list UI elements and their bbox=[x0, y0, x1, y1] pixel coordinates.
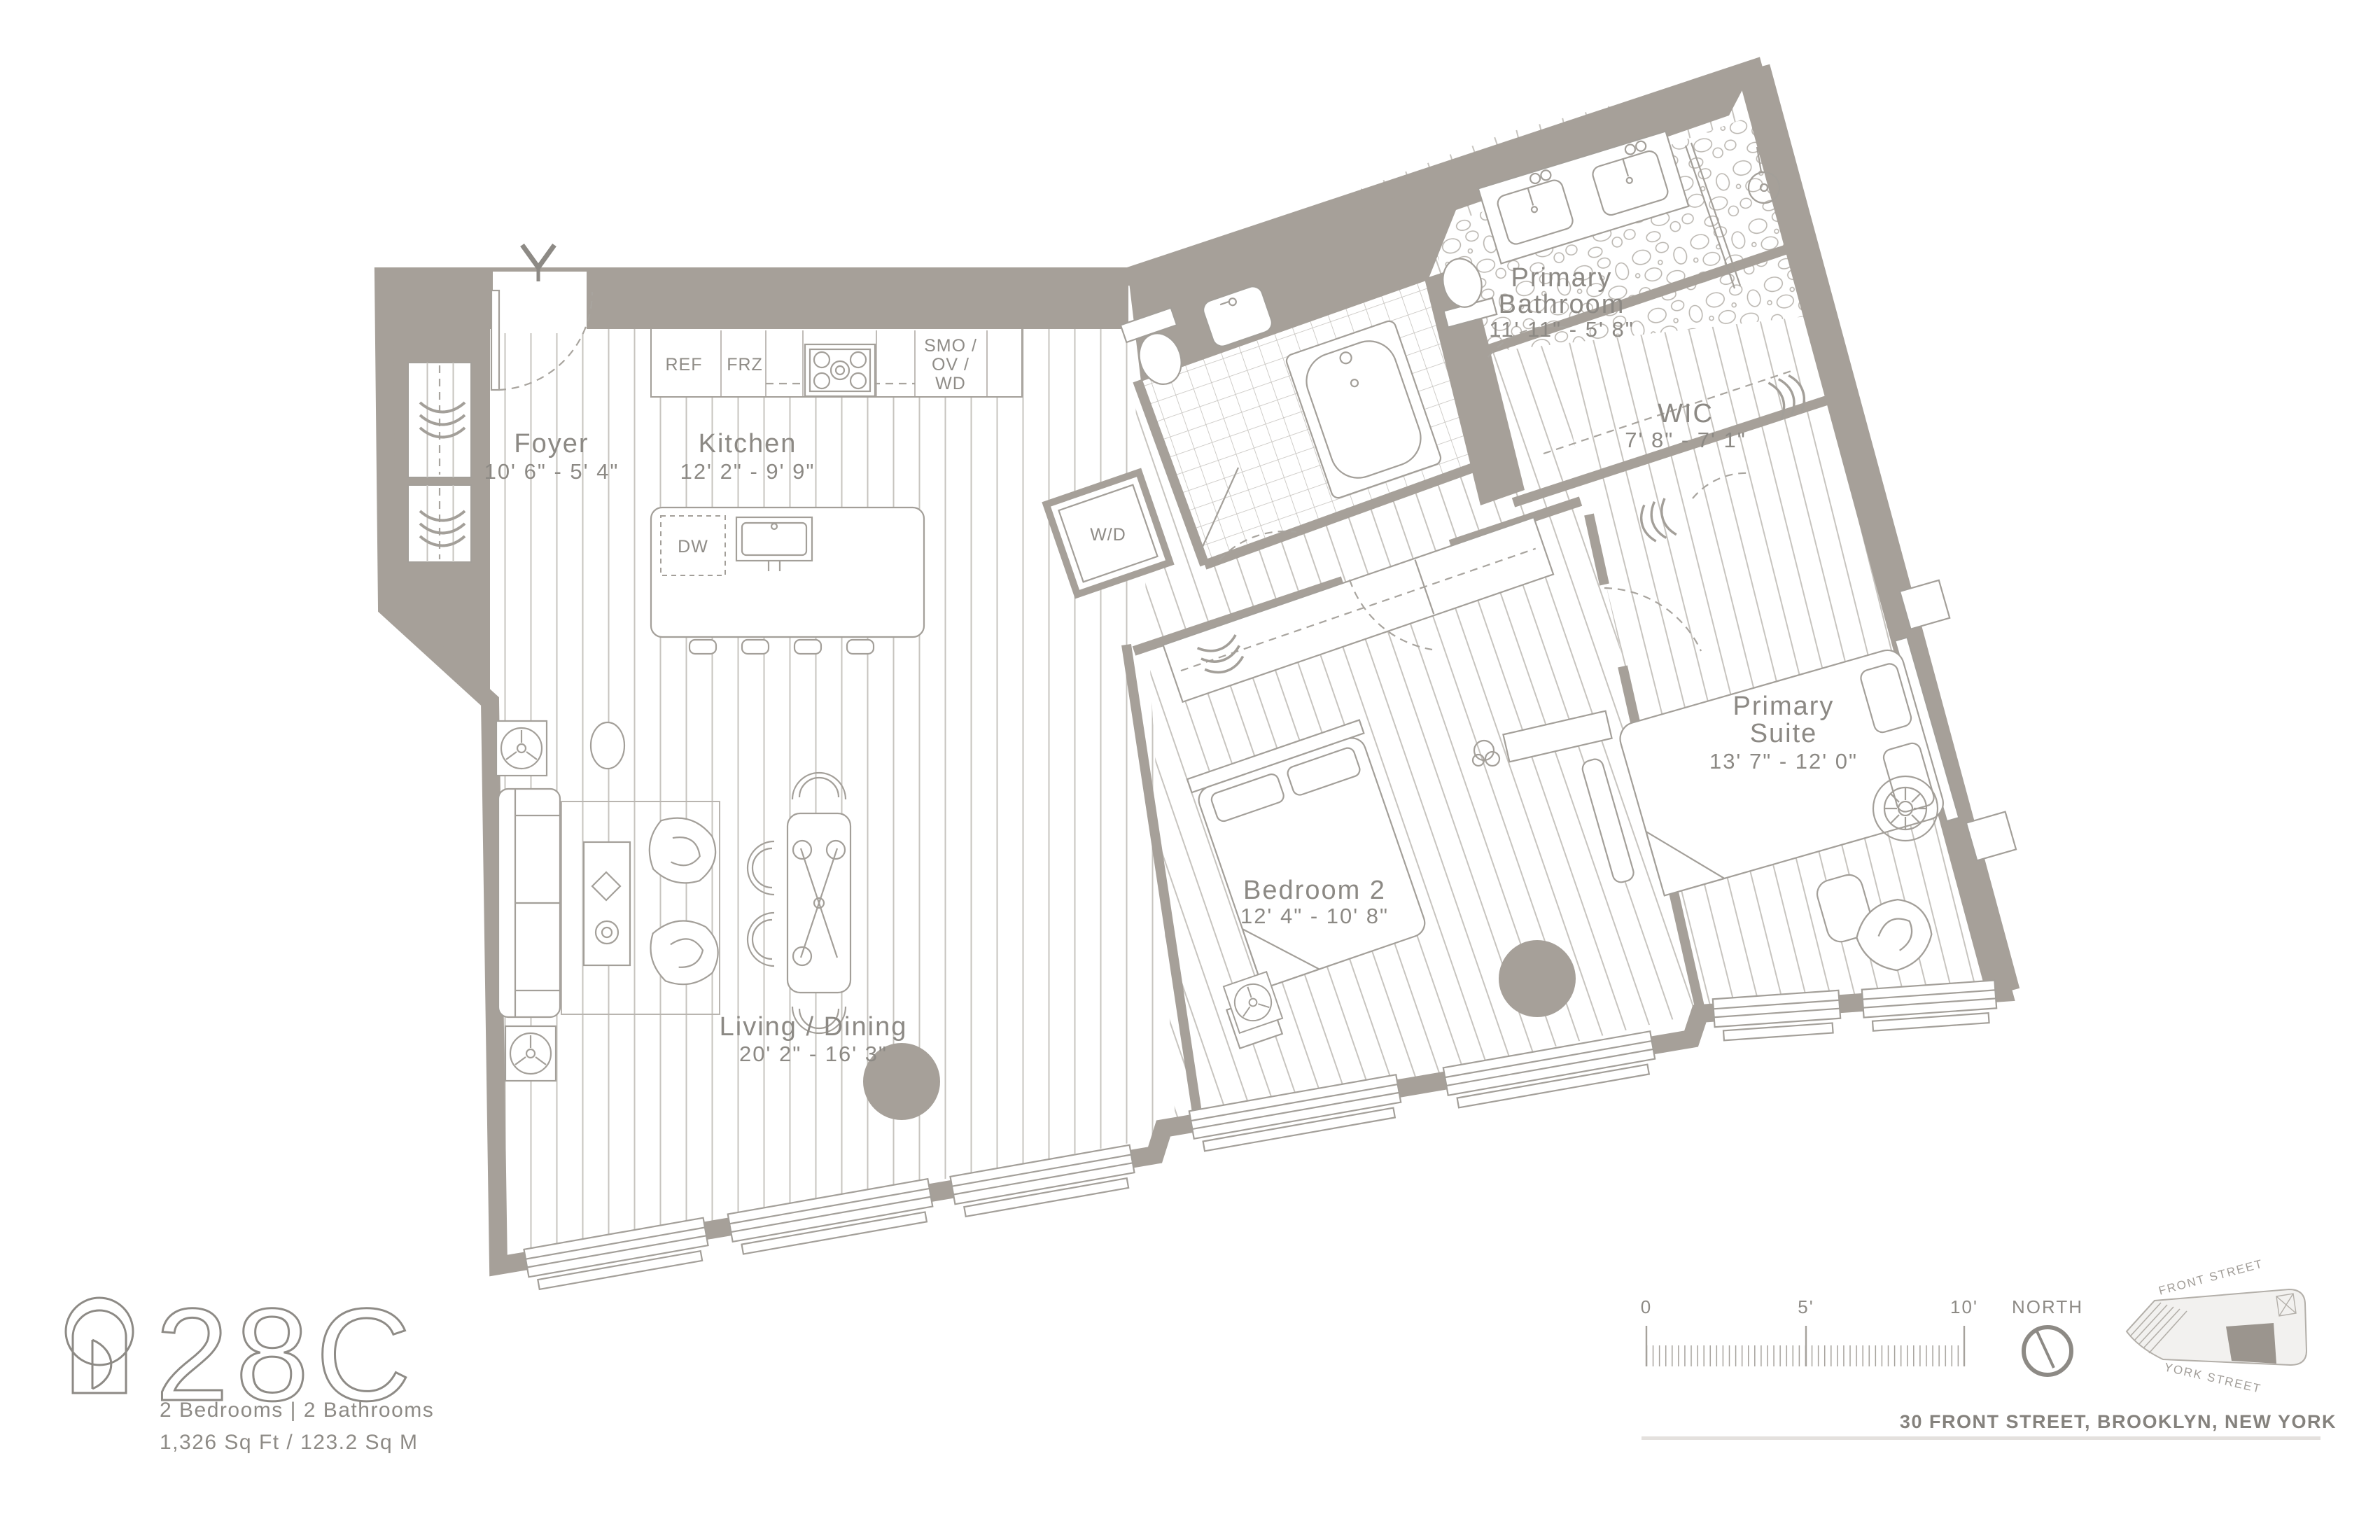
entry-door-leaf bbox=[491, 290, 499, 390]
sofa bbox=[498, 789, 560, 1017]
street-york: YORK STREET bbox=[2163, 1360, 2263, 1395]
unit-specs: 2 Bedrooms | 2 Bathrooms bbox=[160, 1399, 434, 1422]
kitchen-island: DW bbox=[651, 507, 924, 654]
scale-zero: 0 bbox=[1641, 1296, 1652, 1317]
dims-foyer: 10' 6" - 5' 4" bbox=[484, 459, 619, 484]
dims-pbath: 11' 11" - 5' 8" bbox=[1489, 317, 1634, 342]
label-living: Living / Dining bbox=[720, 1012, 908, 1042]
label-bedroom2: Bedroom 2 bbox=[1243, 876, 1386, 905]
label-smo: SMO / bbox=[924, 336, 977, 356]
dims-living: 20' 2" - 16' 3" bbox=[739, 1042, 888, 1066]
dims-kitchen: 12' 2" - 9' 9" bbox=[680, 459, 815, 484]
fine-print-line bbox=[1641, 1436, 2320, 1440]
floor-plan: REF FRZ SMO / OV / WD DW bbox=[0, 0, 2380, 1540]
fan-coil-unit-1 bbox=[496, 721, 547, 776]
label-kitchen: Kitchen bbox=[699, 429, 797, 458]
label-ov: OV / bbox=[932, 355, 969, 374]
foyer-closets bbox=[408, 363, 471, 562]
entry-chevron-icon bbox=[522, 245, 554, 267]
scale-ten: 10' bbox=[1950, 1296, 1978, 1317]
street-front: FRONT STREET bbox=[2157, 1257, 2265, 1298]
dims-bedroom2: 12' 4" - 10' 8" bbox=[1240, 904, 1389, 928]
keyplan-unit-highlight bbox=[2226, 1323, 2276, 1364]
label-pbath-2: Bathroom bbox=[1499, 290, 1625, 319]
keyplan-building bbox=[2127, 1289, 2306, 1365]
label-washer-dryer: W/D bbox=[1090, 525, 1126, 545]
brand-logo-icon bbox=[66, 1298, 133, 1393]
column-2 bbox=[1499, 940, 1576, 1017]
dims-wic: 7' 8" - 7' 1" bbox=[1625, 428, 1746, 452]
label-frz: FRZ bbox=[727, 355, 763, 374]
keyplan: FRONT STREET YORK STREET bbox=[2127, 1257, 2306, 1396]
dims-suite: 13' 7" - 12' 0" bbox=[1709, 749, 1858, 773]
label-dw: DW bbox=[678, 537, 708, 556]
label-suite-2: Suite bbox=[1750, 719, 1818, 748]
label-foyer: Foyer bbox=[514, 429, 589, 458]
label-wd-cab: WD bbox=[935, 374, 966, 393]
compass: NORTH bbox=[2012, 1296, 2083, 1375]
building-address: 30 FRONT STREET, BROOKLYN, NEW YORK bbox=[1900, 1411, 2337, 1432]
dining-table bbox=[787, 813, 850, 993]
compass-needle-icon bbox=[2037, 1331, 2054, 1368]
kitchen-counter: REF FRZ SMO / OV / WD bbox=[651, 329, 1022, 397]
label-wic: WIC bbox=[1658, 399, 1714, 428]
fan-coil-unit-2 bbox=[505, 1026, 556, 1081]
scale-bar: 0 5' 10' bbox=[1641, 1296, 1978, 1366]
unit-area: 1,326 Sq Ft / 123.2 Sq M bbox=[160, 1431, 419, 1454]
scale-five: 5' bbox=[1798, 1296, 1814, 1317]
coffee-table bbox=[584, 842, 630, 965]
label-pbath-1: Primary bbox=[1511, 263, 1613, 293]
label-suite-1: Primary bbox=[1733, 692, 1835, 721]
compass-label: NORTH bbox=[2012, 1296, 2083, 1317]
label-ref: REF bbox=[666, 355, 703, 374]
stove-icon bbox=[805, 344, 875, 396]
side-table bbox=[591, 722, 624, 769]
